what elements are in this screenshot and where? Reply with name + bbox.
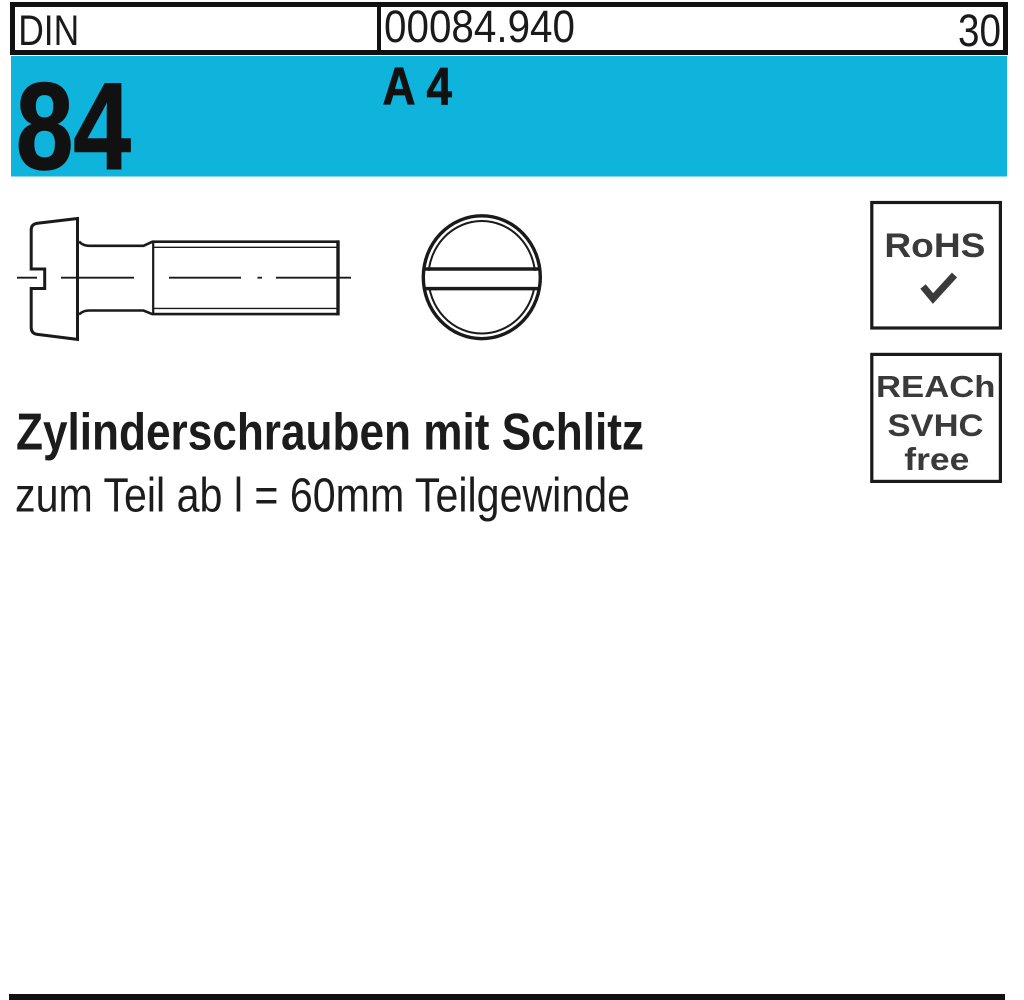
svg-text:SVHC: SVHC xyxy=(888,407,984,443)
svg-text:zum Teil ab l = 60mm Teilgewin: zum Teil ab l = 60mm Teilgewinde xyxy=(15,470,630,523)
svg-text:Zylinderschrauben mit Schlitz: Zylinderschrauben mit Schlitz xyxy=(16,403,644,461)
svg-text:84: 84 xyxy=(16,58,131,196)
svg-text:30: 30 xyxy=(958,5,1001,56)
svg-text:DIN: DIN xyxy=(18,7,79,55)
svg-text:A 4: A 4 xyxy=(383,57,453,116)
svg-text:00084.940: 00084.940 xyxy=(384,1,575,52)
svg-text:RoHS: RoHS xyxy=(884,227,985,265)
svg-text:free: free xyxy=(904,441,969,477)
svg-text:REACh: REACh xyxy=(876,369,996,404)
